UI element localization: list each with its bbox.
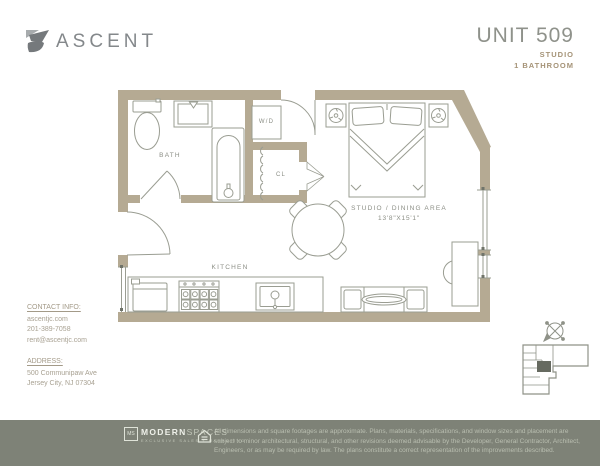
contact-phone[interactable]: 201-389-7058 [27, 325, 97, 336]
compass-icon [544, 322, 564, 341]
label-washer-dryer: W/D [250, 119, 283, 125]
flyer-page: ASCENT UNIT 509 STUDIO 1 BATHROOM [0, 0, 600, 466]
closet-hooks [261, 147, 263, 200]
contact-block: CONTACT INFO: ascentjc.com 201-389-7058 … [27, 303, 97, 401]
kitchen-sink [256, 283, 294, 310]
label-studio-block: STUDIO / DINING AREA 13'8"X15'1" [339, 205, 459, 222]
contact-email[interactable]: rent@ascentjc.com [27, 336, 97, 347]
stove [179, 281, 219, 312]
label-kitchen: KITCHEN [200, 264, 260, 271]
label-studio: STUDIO / DINING AREA [339, 205, 459, 212]
address-line2: Jersey City, NJ 07304 [27, 379, 97, 390]
key-plan-unit-highlight [537, 361, 551, 372]
media-console [341, 287, 427, 312]
footer-disclaimer: All dimensions and square footages are a… [214, 427, 590, 456]
fridge [132, 279, 168, 311]
address-heading: ADDRESS: [27, 357, 97, 368]
desk-chair [443, 261, 452, 284]
label-studio-dimensions: 13'8"X15'1" [339, 215, 459, 222]
modern-spaces-logo-box: MS [124, 427, 138, 441]
dining-table [292, 204, 344, 256]
contact-heading: CONTACT INFO: [27, 303, 97, 314]
bath-door [141, 171, 180, 199]
label-closet: CL [272, 172, 290, 178]
entry-door [281, 100, 315, 135]
bathtub [212, 128, 244, 202]
key-plan [523, 345, 588, 394]
equal-housing-icon [197, 429, 212, 444]
nightstand-right [429, 104, 448, 127]
bathroom-sink [174, 101, 212, 127]
bed [349, 103, 425, 197]
desk [452, 242, 478, 306]
left-door [127, 212, 170, 255]
contact-website[interactable]: ascentjc.com [27, 315, 97, 326]
address-line1: 500 Communipaw Ave [27, 369, 97, 380]
label-bath: BATH [152, 152, 188, 159]
modern-spaces-main: MODERN [141, 427, 187, 437]
toilet [133, 99, 161, 150]
closet-doors [307, 162, 324, 191]
nightstand-left [326, 104, 346, 127]
